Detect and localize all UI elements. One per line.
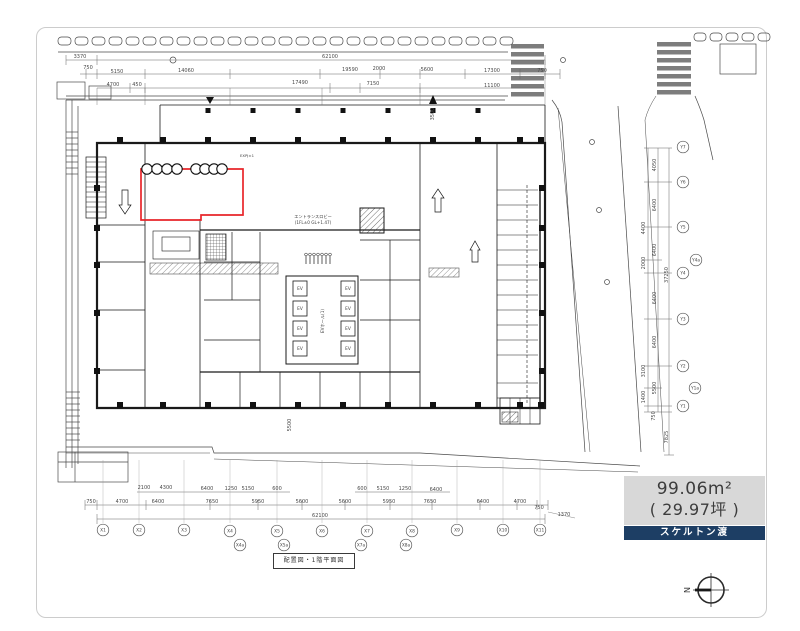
- dimension-lines: [66, 55, 674, 524]
- svg-text:5600: 5600: [296, 499, 309, 505]
- svg-text:Y7: Y7: [679, 145, 686, 151]
- svg-text:4700: 4700: [116, 499, 129, 505]
- structural-columns: [94, 108, 545, 408]
- svg-text:14060: 14060: [178, 68, 194, 74]
- svg-text:750: 750: [651, 411, 657, 421]
- svg-text:5150: 5150: [377, 486, 390, 492]
- svg-text:3370: 3370: [74, 54, 87, 60]
- svg-text:7825: 7825: [664, 431, 670, 444]
- svg-text:EV: EV: [297, 286, 303, 292]
- svg-text:(1FL±0 GL+1.47): (1FL±0 GL+1.47): [295, 220, 332, 225]
- svg-text:19590: 19590: [342, 67, 358, 73]
- svg-text:4300: 4300: [160, 485, 173, 491]
- svg-text:7650: 7650: [424, 499, 437, 505]
- svg-text:Y4a: Y4a: [691, 258, 700, 264]
- svg-text:4700: 4700: [514, 499, 527, 505]
- svg-text:5600: 5600: [339, 499, 352, 505]
- svg-text:4050: 4050: [652, 159, 658, 172]
- svg-text:6400: 6400: [201, 486, 214, 492]
- svg-text:11100: 11100: [484, 83, 500, 89]
- svg-text:600: 600: [357, 486, 367, 492]
- parking-stalls: [497, 190, 538, 398]
- svg-text:750: 750: [86, 499, 96, 505]
- svg-text:EV: EV: [345, 286, 351, 292]
- svg-text:EV: EV: [345, 326, 351, 332]
- svg-text:X4: X4: [227, 529, 233, 535]
- svg-text:17490: 17490: [292, 80, 308, 86]
- area-m2: 99.06m²: [624, 479, 765, 500]
- svg-text:5950: 5950: [383, 499, 396, 505]
- svg-text:X9: X9: [454, 528, 460, 534]
- svg-text:EVホール(1): EVホール(1): [320, 309, 325, 333]
- svg-text:1370: 1370: [558, 512, 571, 518]
- svg-text:Y2: Y2: [679, 364, 686, 370]
- svg-text:37250: 37250: [664, 267, 670, 283]
- svg-text:EXPJ±1: EXPJ±1: [240, 153, 255, 158]
- svg-text:X7a: X7a: [357, 543, 366, 549]
- drawing-title: 配置図・1階平面図: [273, 553, 355, 569]
- svg-text:1250: 1250: [399, 486, 412, 492]
- svg-text:X11: X11: [536, 528, 545, 534]
- svg-text:1400: 1400: [641, 391, 647, 404]
- svg-text:6400: 6400: [652, 336, 658, 349]
- svg-text:62100: 62100: [322, 54, 338, 60]
- north-pointer: [695, 589, 711, 592]
- highlighted-unit-outline: [141, 164, 243, 220]
- svg-text:Y4: Y4: [679, 271, 686, 277]
- svg-text:750: 750: [537, 68, 547, 74]
- svg-text:Y3: Y3: [679, 317, 686, 323]
- north-letter: N: [683, 587, 692, 593]
- svg-text:2100: 2100: [138, 485, 151, 491]
- svg-text:X2: X2: [136, 528, 142, 534]
- svg-text:5150: 5150: [242, 486, 255, 492]
- svg-text:6400: 6400: [652, 292, 658, 305]
- svg-text:7150: 7150: [367, 81, 380, 87]
- svg-text:EV: EV: [297, 326, 303, 332]
- svg-text:5600: 5600: [421, 67, 434, 73]
- svg-text:6400: 6400: [430, 487, 443, 493]
- svg-text:X3: X3: [181, 528, 187, 534]
- svg-text:2000: 2000: [641, 257, 647, 270]
- svg-text:4400: 4400: [641, 222, 647, 235]
- svg-text:5150: 5150: [111, 69, 124, 75]
- svg-text:3100: 3100: [641, 365, 647, 378]
- svg-text:エントランスロビー: エントランスロビー: [294, 213, 332, 220]
- svg-text:EV: EV: [297, 306, 303, 312]
- svg-text:X4a: X4a: [236, 543, 245, 549]
- svg-text:3500: 3500: [430, 108, 436, 121]
- svg-text:X6: X6: [319, 529, 325, 535]
- svg-text:5950: 5950: [252, 499, 265, 505]
- svg-text:62100: 62100: [312, 513, 328, 519]
- svg-text:Y5: Y5: [679, 225, 686, 231]
- up-arrow-small-icon: [470, 241, 480, 262]
- svg-text:2000: 2000: [373, 66, 386, 72]
- svg-text:EV: EV: [345, 306, 351, 312]
- svg-text:X5: X5: [274, 529, 280, 535]
- down-arrow-icon: [119, 190, 131, 214]
- area-values: 99.06m² ( 29.97坪 ): [624, 476, 765, 525]
- svg-text:EV: EV: [345, 346, 351, 352]
- svg-text:X1: X1: [100, 528, 106, 534]
- svg-text:17300: 17300: [484, 68, 500, 74]
- svg-text:7650: 7650: [206, 499, 219, 505]
- svg-text:6400: 6400: [652, 199, 658, 212]
- svg-text:X10: X10: [499, 528, 508, 534]
- svg-text:450: 450: [132, 82, 142, 88]
- svg-text:X8: X8: [409, 529, 415, 535]
- dimension-labels: 3370621007505150140601959020005600173007…: [74, 54, 670, 519]
- svg-text:600: 600: [272, 486, 282, 492]
- svg-text:6400: 6400: [652, 244, 658, 257]
- svg-text:X8a: X8a: [402, 543, 411, 549]
- building-plan: [86, 95, 545, 424]
- area-info-box: 99.06m² ( 29.97坪 ) スケルトン渡: [624, 476, 765, 540]
- svg-text:Y1a: Y1a: [690, 386, 699, 392]
- svg-text:6400: 6400: [152, 499, 165, 505]
- handover-condition-badge: スケルトン渡: [624, 526, 765, 540]
- floor-plan-page: 3370621007505150140601959020005600173007…: [0, 0, 800, 631]
- svg-text:750: 750: [83, 65, 93, 71]
- svg-text:X5a: X5a: [280, 543, 289, 549]
- svg-text:5500: 5500: [287, 419, 293, 432]
- svg-text:1250: 1250: [225, 486, 238, 492]
- svg-text:EV: EV: [297, 346, 303, 352]
- up-arrow-icon: [432, 189, 444, 212]
- svg-text:750: 750: [534, 505, 544, 511]
- svg-text:Y1: Y1: [679, 404, 686, 410]
- roads-and-site: [57, 33, 770, 482]
- svg-text:Y6: Y6: [679, 180, 686, 186]
- svg-text:6400: 6400: [477, 499, 490, 505]
- entrance-door-symbol: [305, 253, 332, 264]
- svg-text:5500: 5500: [652, 382, 658, 395]
- svg-text:4700: 4700: [107, 82, 120, 88]
- area-tsubo: ( 29.97坪 ): [624, 500, 765, 520]
- north-compass: N: [683, 573, 729, 607]
- svg-text:X7: X7: [364, 529, 370, 535]
